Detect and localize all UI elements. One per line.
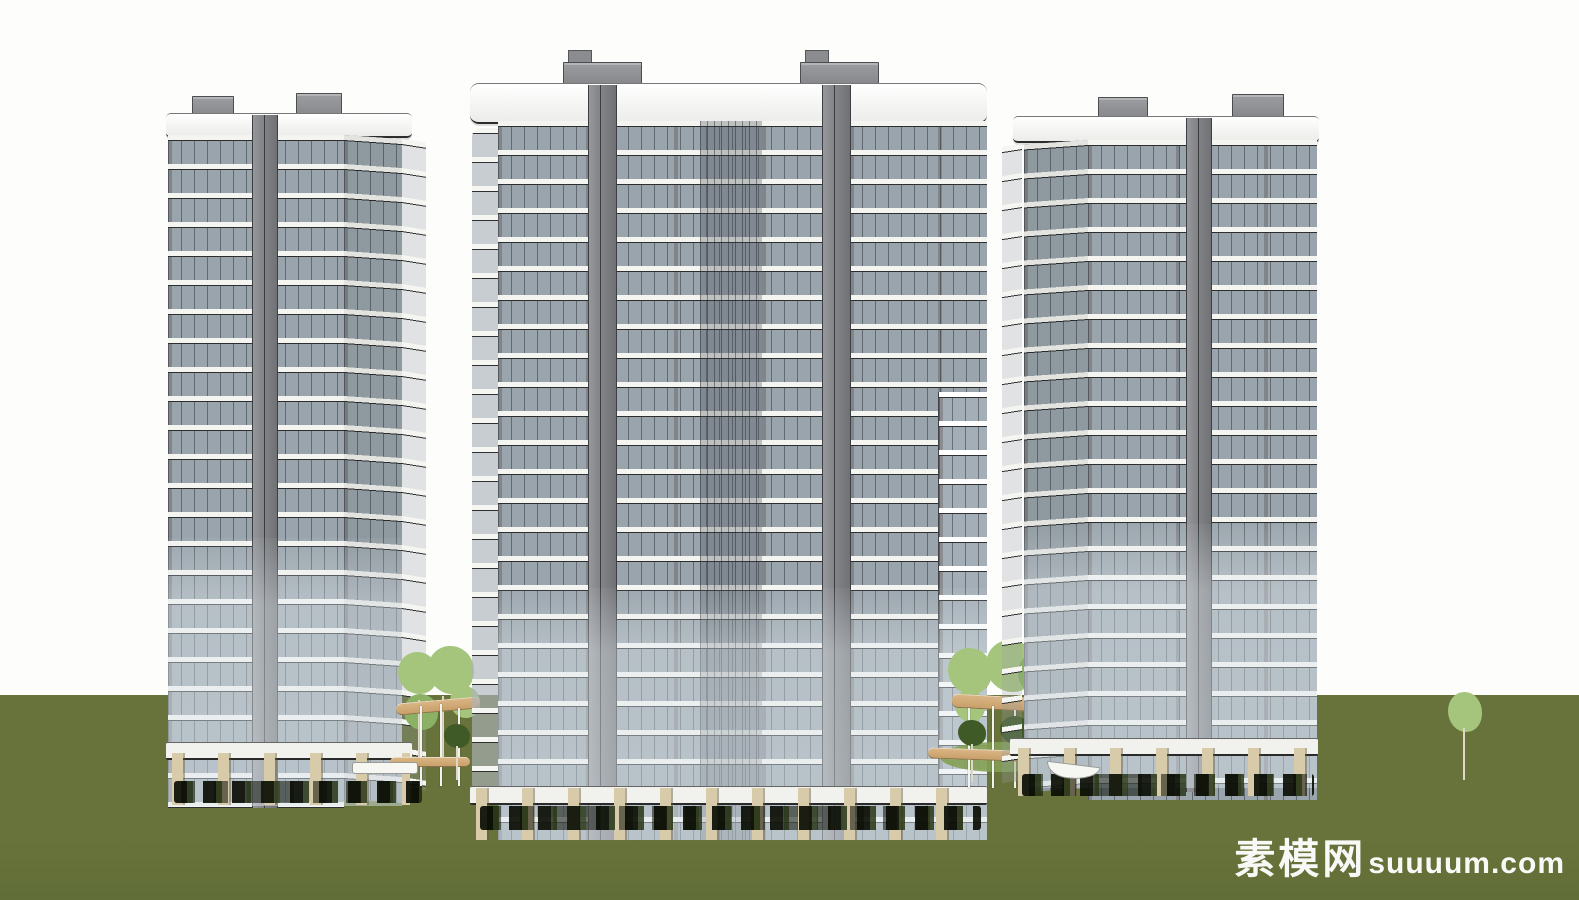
roof-core-box [800,62,879,84]
scene: 素模网suuuum.com [0,0,1579,900]
roof-core-box [1232,94,1284,117]
foundation-shrubs [174,781,422,803]
walkway-post [992,706,994,788]
tower-right-side-facade [1024,140,1088,792]
watermark-domain: suuuum.com [1368,849,1565,879]
tower-left-side-facade [344,135,402,803]
walkway-post [420,706,422,786]
tower-center [466,48,990,840]
roof-parapet [1013,116,1319,143]
tree-trunk [1463,728,1465,780]
tree-crown [1448,692,1482,732]
elevator-shaft-pier [822,85,851,840]
walkway-post [440,704,442,786]
elevator-shaft-pier [252,115,278,808]
roof-core-box [1098,97,1148,117]
entrance-canopy [352,762,418,774]
elevator-shaft-pier [1186,118,1212,792]
tree-crown [948,648,992,694]
tree-crown [958,720,986,746]
tree-trunk [456,746,458,780]
watermark-site-name: 素模网 [1234,839,1366,880]
foundation-shrubs [480,806,981,830]
watermark: 素模网suuuum.com [1234,839,1565,880]
tower-right [1002,92,1332,800]
elevator-shaft-pier [588,85,617,840]
balcony-tips [1002,144,1022,783]
roof-parapet [470,83,987,124]
corner-balcony-strip [472,128,498,792]
central-recessed-bay [700,121,762,840]
roof-core-box [563,62,642,84]
tower-left [166,93,438,808]
